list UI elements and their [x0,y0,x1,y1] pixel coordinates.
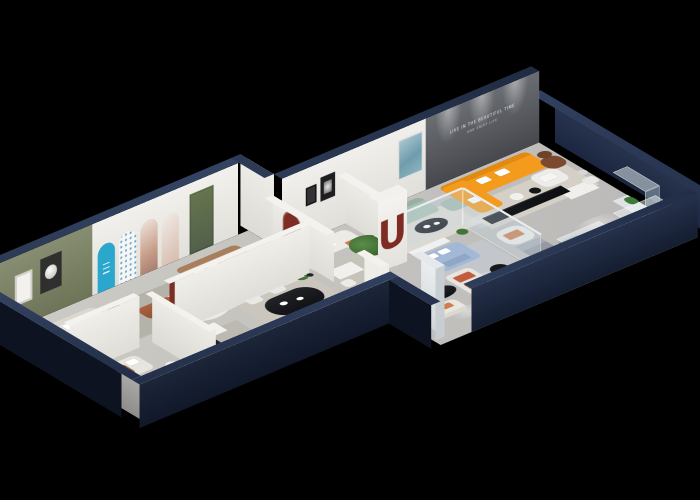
wall-art-frame [306,184,317,207]
abstract-blue-painting [398,130,423,181]
green-door [190,185,214,255]
column-letter-u: U [378,203,407,263]
arch-cyan-text-marks [103,261,110,276]
wall-art-photo [320,172,335,202]
arch-niche-poster [162,210,179,267]
render-canvas: LIVE IN THE BEAUTIFUL TIME AND ENJOY LIF… [0,0,700,500]
photo-highlight [324,179,332,194]
plate-disc [45,262,57,281]
arch-niche-dots [119,228,136,285]
arch-niche-cyan [98,240,115,294]
arch-niche-poster [140,216,157,276]
